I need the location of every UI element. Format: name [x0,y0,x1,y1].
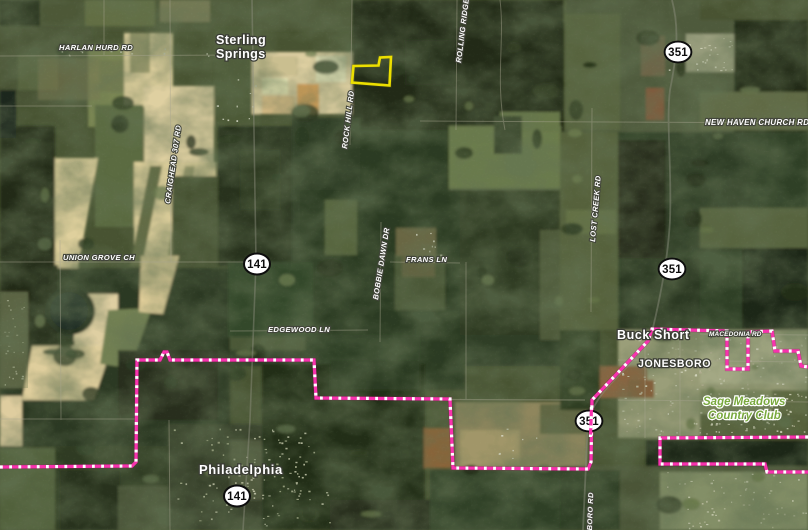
svg-text:351: 351 [579,416,599,428]
svg-text:EDGEWOOD LN: EDGEWOOD LN [268,325,330,334]
svg-text:Buck Short: Buck Short [617,328,690,342]
svg-text:HARLAN HURD RD: HARLAN HURD RD [59,43,133,52]
svg-text:FRANS LN: FRANS LN [406,255,447,264]
svg-text:JONESBORO: JONESBORO [638,358,711,370]
svg-text:Springs: Springs [216,47,266,61]
svg-text:JONESBORO RD: JONESBORO RD [584,492,595,530]
svg-text:351: 351 [668,47,688,59]
svg-text:351: 351 [662,264,682,276]
svg-text:Country Club: Country Club [708,410,781,422]
svg-text:Sterling: Sterling [216,33,266,47]
svg-text:141: 141 [227,491,247,503]
svg-text:141: 141 [247,259,267,271]
svg-text:MACEDONIA RD: MACEDONIA RD [709,331,762,338]
svg-text:UNION GROVE CH: UNION GROVE CH [63,253,135,262]
svg-text:NEW HAVEN CHURCH RD: NEW HAVEN CHURCH RD [705,118,808,127]
svg-text:Philadelphia: Philadelphia [199,462,283,477]
svg-text:Sage Meadows: Sage Meadows [703,396,785,408]
